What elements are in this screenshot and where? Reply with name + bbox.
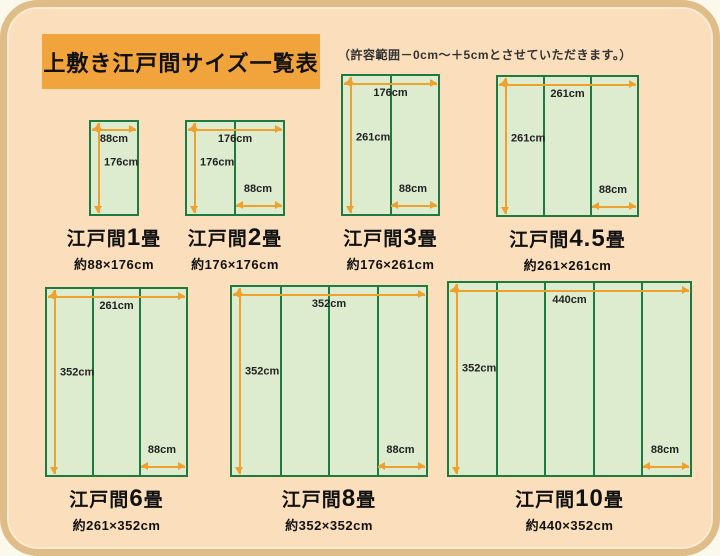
height-arrow	[456, 284, 458, 474]
width-arrow	[344, 83, 437, 85]
mat-rect: 176cm 261cm 88cm	[341, 74, 440, 216]
mat-caption: 江戸間2畳 約176×176cm	[188, 225, 282, 273]
mat-size: 約261×352cm	[69, 515, 163, 534]
height-dim-label: 261cm	[356, 133, 390, 144]
mat-diagram: 261cm 352cm 88cm 江戸間6畳 約261×352cm	[45, 287, 188, 477]
width-dim-label: 176cm	[343, 88, 438, 99]
panel-divider	[593, 283, 595, 475]
mat-name: 江戸間1畳	[67, 225, 161, 251]
panel-divider	[544, 283, 546, 475]
mat-name-suffix: 畳	[604, 490, 624, 511]
mat-caption: 江戸間10畳 約440×352cm	[515, 486, 624, 534]
mat-name-prefix: 江戸間	[188, 229, 248, 250]
mat-name-prefix: 江戸間	[67, 229, 127, 250]
mat-name-number: 2	[248, 224, 262, 251]
height-dim-label: 352cm	[60, 367, 94, 378]
mat-name: 江戸間2畳	[188, 225, 282, 251]
height-arrow	[54, 290, 56, 474]
mat-diagram: 261cm 261cm 88cm 江戸間4.5畳 約261×261cm	[496, 75, 639, 217]
mat-rect: 261cm 352cm 88cm	[45, 287, 188, 477]
mat-diagram: 176cm 176cm 88cm 江戸間2畳 約176×176cm	[185, 120, 285, 216]
panel-width-arrow	[391, 205, 437, 207]
mat-caption: 江戸間3畳 約176×261cm	[343, 225, 437, 273]
mat-size: 約440×352cm	[515, 515, 624, 534]
mat-size: 約176×176cm	[188, 254, 282, 273]
panel-divider	[496, 283, 498, 475]
width-dim-label: 352cm	[232, 299, 426, 310]
mat-rect: 440cm 352cm 88cm	[447, 281, 692, 477]
mat-name-number: 1	[127, 224, 141, 251]
height-dim-label: 176cm	[104, 158, 138, 169]
mat-name: 江戸間10畳	[515, 486, 624, 512]
panel-divider	[92, 289, 94, 475]
mat-name-suffix: 畳	[356, 490, 376, 511]
mat-rect: 261cm 261cm 88cm	[496, 75, 639, 217]
height-arrow	[239, 288, 241, 474]
panel-width-dim-label: 88cm	[376, 445, 425, 456]
panel-divider	[328, 287, 330, 475]
mat-name: 江戸間3畳	[343, 225, 437, 251]
panel-width-dim-label: 88cm	[139, 445, 185, 456]
mat-name-prefix: 江戸間	[509, 230, 569, 251]
mat-size: 約176×261cm	[343, 254, 437, 273]
mat-diagram: 88cm 176cm 江戸間1畳 約88×176cm	[89, 120, 139, 216]
mats-layer: 88cm 176cm 江戸間1畳 約88×176cm 176cm 176cm 8…	[0, 0, 720, 556]
panel-width-arrow	[236, 205, 282, 207]
panel-width-arrow	[592, 206, 636, 208]
height-dim-label: 352cm	[245, 366, 279, 377]
panel-width-dim-label: 88cm	[641, 445, 689, 456]
panel-width-arrow	[643, 466, 689, 468]
mat-name-prefix: 江戸間	[515, 490, 575, 511]
mat-name: 江戸間4.5畳	[509, 226, 625, 252]
width-arrow	[188, 129, 282, 131]
mat-name-number: 8	[342, 485, 356, 512]
width-arrow	[48, 296, 185, 298]
mat-rect: 352cm 352cm 88cm	[230, 285, 428, 477]
panel-width-arrow	[141, 466, 185, 468]
mat-diagram: 440cm 352cm 88cm 江戸間10畳 約440×352cm	[447, 281, 692, 477]
panel-width-dim-label: 88cm	[234, 184, 282, 195]
mat-rect: 176cm 176cm 88cm	[185, 120, 285, 216]
width-arrow	[450, 290, 689, 292]
panel-width-dim-label: 88cm	[389, 184, 437, 195]
height-dim-label: 352cm	[462, 364, 496, 375]
mat-name-suffix: 畳	[262, 229, 282, 250]
mat-size: 約352×352cm	[282, 515, 376, 534]
mat-name-number: 4.5	[569, 225, 605, 252]
mat-caption: 江戸間4.5畳 約261×261cm	[509, 226, 625, 274]
mat-name-prefix: 江戸間	[343, 229, 403, 250]
width-arrow	[233, 294, 425, 296]
mat-rect: 88cm 176cm	[89, 120, 139, 216]
mat-name-suffix: 畳	[141, 229, 161, 250]
mat-name-suffix: 畳	[144, 490, 164, 511]
width-arrow	[499, 84, 636, 86]
panel-divider	[280, 287, 282, 475]
mat-caption: 江戸間6畳 約261×352cm	[69, 486, 163, 534]
mat-diagram: 176cm 261cm 88cm 江戸間3畳 約176×261cm	[341, 74, 440, 216]
width-dim-label: 440cm	[449, 295, 690, 306]
height-dim-label: 176cm	[200, 158, 234, 169]
height-dim-label: 261cm	[511, 134, 545, 145]
mat-name-number: 6	[129, 485, 143, 512]
mat-name-prefix: 江戸間	[282, 490, 342, 511]
mat-caption: 江戸間8畳 約352×352cm	[282, 486, 376, 534]
mat-name-number: 3	[403, 224, 417, 251]
panel-width-arrow	[378, 466, 425, 468]
mat-name-suffix: 畳	[418, 229, 438, 250]
mat-caption: 江戸間1畳 約88×176cm	[67, 225, 161, 273]
mat-name-number: 10	[575, 485, 604, 512]
width-dim-label: 261cm	[498, 89, 637, 100]
width-dim-label: 88cm	[91, 134, 137, 145]
mat-diagram: 352cm 352cm 88cm 江戸間8畳 約352×352cm	[230, 285, 428, 477]
mat-size: 約88×176cm	[67, 254, 161, 273]
mat-name: 江戸間8畳	[282, 486, 376, 512]
mat-size: 約261×261cm	[509, 255, 625, 274]
mat-name-suffix: 畳	[606, 230, 626, 251]
mat-name-prefix: 江戸間	[69, 490, 129, 511]
mat-name: 江戸間6畳	[69, 486, 163, 512]
panel-width-dim-label: 88cm	[590, 185, 636, 196]
width-dim-label: 176cm	[187, 134, 283, 145]
width-dim-label: 261cm	[47, 301, 186, 312]
